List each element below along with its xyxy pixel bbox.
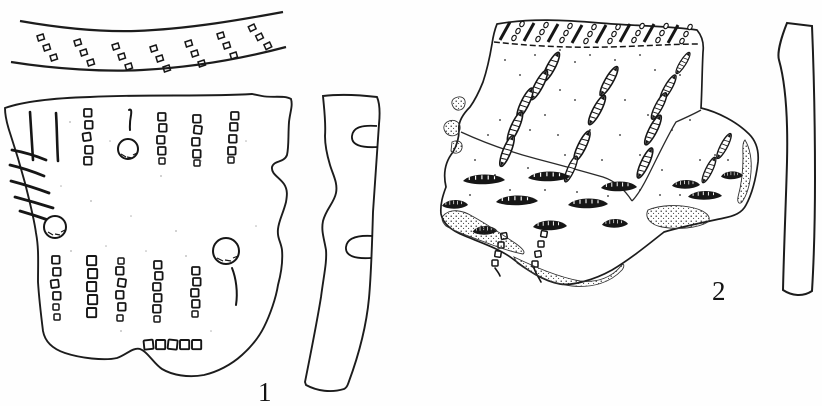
sherd-2-outline bbox=[441, 20, 758, 284]
sherd-1-bottom-square-row bbox=[144, 340, 202, 350]
rim-band-top-view bbox=[11, 12, 286, 72]
sherd-2 bbox=[441, 20, 758, 286]
sherd-2-profile bbox=[778, 23, 815, 295]
rim-band-upper-line bbox=[20, 12, 283, 31]
figure-canvas: 1 bbox=[0, 0, 822, 406]
hole bbox=[44, 216, 66, 238]
sherd-1 bbox=[5, 94, 292, 376]
label-2: 2 bbox=[712, 276, 726, 306]
sherd-2-profile-outline bbox=[778, 23, 815, 295]
sherd-1-profile bbox=[305, 95, 380, 391]
label-1: 1 bbox=[258, 377, 272, 406]
rim-band-lower-line bbox=[11, 47, 286, 71]
sherd-1-profile-outline bbox=[305, 95, 380, 391]
figure-plate: 1 bbox=[0, 0, 822, 406]
hole bbox=[118, 139, 138, 159]
